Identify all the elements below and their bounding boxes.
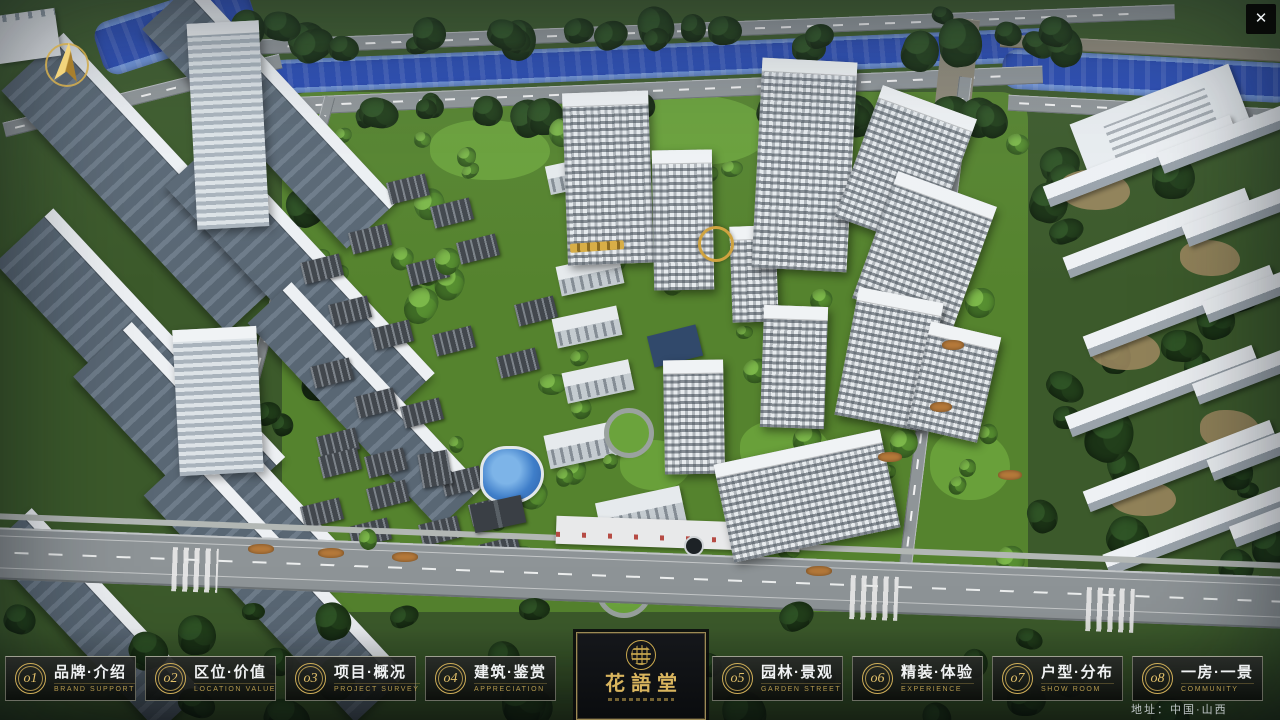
nav-item-label: 户型·分布 bbox=[1041, 665, 1114, 680]
crosswalk bbox=[171, 547, 219, 593]
nav-item-sublabel: BRAND SUPPORT bbox=[54, 683, 135, 693]
nav-item-label: 建筑·鉴赏 bbox=[474, 665, 547, 680]
tree-cluster bbox=[519, 598, 551, 622]
residential-tower bbox=[752, 58, 858, 273]
tree-cluster bbox=[1042, 366, 1089, 409]
nav-item-label: 区位·价值 bbox=[194, 665, 276, 680]
crosswalk bbox=[849, 575, 899, 621]
nav-item-sublabel: SHOW ROOM bbox=[1041, 683, 1114, 693]
clubhouse bbox=[417, 450, 452, 489]
nav-item-floorplan[interactable]: o7 户型·分布 SHOW ROOM bbox=[992, 656, 1123, 701]
nav-number-badge: o4 bbox=[435, 663, 466, 694]
address-text: 地址：中国·山西 bbox=[1131, 701, 1228, 717]
tree-cluster bbox=[681, 14, 707, 42]
residential-tower bbox=[652, 149, 714, 290]
residential-tower bbox=[663, 359, 725, 474]
logo-panel[interactable]: 花語堂 bbox=[576, 632, 706, 720]
orange-shrub bbox=[318, 548, 344, 558]
logo-tagline-line bbox=[608, 698, 674, 701]
orange-shrub bbox=[930, 402, 952, 412]
nav-number-badge: o3 bbox=[295, 663, 326, 694]
nav-number-badge: o5 bbox=[722, 663, 753, 694]
gold-feature bbox=[698, 226, 734, 262]
nav-item-label: 精装·体验 bbox=[901, 665, 974, 680]
city-tower bbox=[172, 326, 264, 476]
nav-item-label: 园林·景观 bbox=[761, 665, 841, 680]
nav-number-badge: o1 bbox=[15, 663, 46, 694]
nav-item-label: 一房·一景 bbox=[1181, 665, 1254, 680]
orange-shrub bbox=[806, 566, 832, 576]
nav-item-sublabel: GARDEN STREET bbox=[761, 683, 841, 693]
circular-plaza bbox=[604, 408, 654, 458]
nav-item-project-overview[interactable]: o3 项目·概况 PROJECT SURVEY bbox=[285, 656, 416, 701]
logo-seal-icon bbox=[626, 640, 656, 670]
residential-tower bbox=[760, 305, 828, 429]
nav-number-badge: o7 bbox=[1002, 663, 1033, 694]
nav-item-sublabel: COMMUNITY bbox=[1181, 683, 1254, 693]
presentation-window: ✕ o1 品牌·介绍 BRAND SUPPORT o2 区位·价值 LOCATI… bbox=[0, 0, 1280, 720]
nav-item-label: 品牌·介绍 bbox=[54, 665, 135, 680]
orange-shrub bbox=[998, 470, 1022, 480]
nav-item-interior-experience[interactable]: o6 精装·体验 EXPERIENCE bbox=[852, 656, 983, 701]
nav-item-location-value[interactable]: o2 区位·价值 LOCATION VALUE bbox=[145, 656, 276, 701]
close-button[interactable]: ✕ bbox=[1246, 4, 1276, 34]
tree-cluster bbox=[1023, 495, 1063, 538]
orange-shrub bbox=[942, 340, 964, 350]
orange-shrub bbox=[248, 544, 274, 554]
nav-number-badge: o8 bbox=[1142, 663, 1173, 694]
orange-shrub bbox=[392, 552, 418, 562]
residential-tower bbox=[562, 91, 654, 266]
nav-item-sublabel: LOCATION VALUE bbox=[194, 683, 276, 693]
logo-title: 花語堂 bbox=[599, 674, 683, 694]
nav-number-badge: o2 bbox=[155, 663, 186, 694]
nav-number-badge: o6 bbox=[862, 663, 893, 694]
nav-item-sublabel: EXPERIENCE bbox=[901, 683, 974, 693]
crosswalk bbox=[1085, 587, 1135, 633]
orange-shrub bbox=[878, 452, 902, 462]
tree-cluster bbox=[416, 99, 438, 119]
city-tower bbox=[187, 20, 270, 229]
site-plan-render[interactable] bbox=[0, 0, 1280, 720]
nav-item-brand-intro[interactable]: o1 品牌·介绍 BRAND SUPPORT bbox=[5, 656, 136, 701]
nav-item-landscape[interactable]: o5 园林·景观 GARDEN STREET bbox=[712, 656, 843, 701]
nav-item-label: 项目·概况 bbox=[334, 665, 420, 680]
nav-item-sublabel: PROJECT SURVEY bbox=[334, 683, 420, 693]
nav-item-sublabel: APPRECIATION bbox=[474, 683, 547, 693]
nav-item-scenery[interactable]: o8 一房·一景 COMMUNITY bbox=[1132, 656, 1263, 701]
nav-item-architecture[interactable]: o4 建筑·鉴赏 APPRECIATION bbox=[425, 656, 556, 701]
compass-icon bbox=[42, 40, 92, 90]
